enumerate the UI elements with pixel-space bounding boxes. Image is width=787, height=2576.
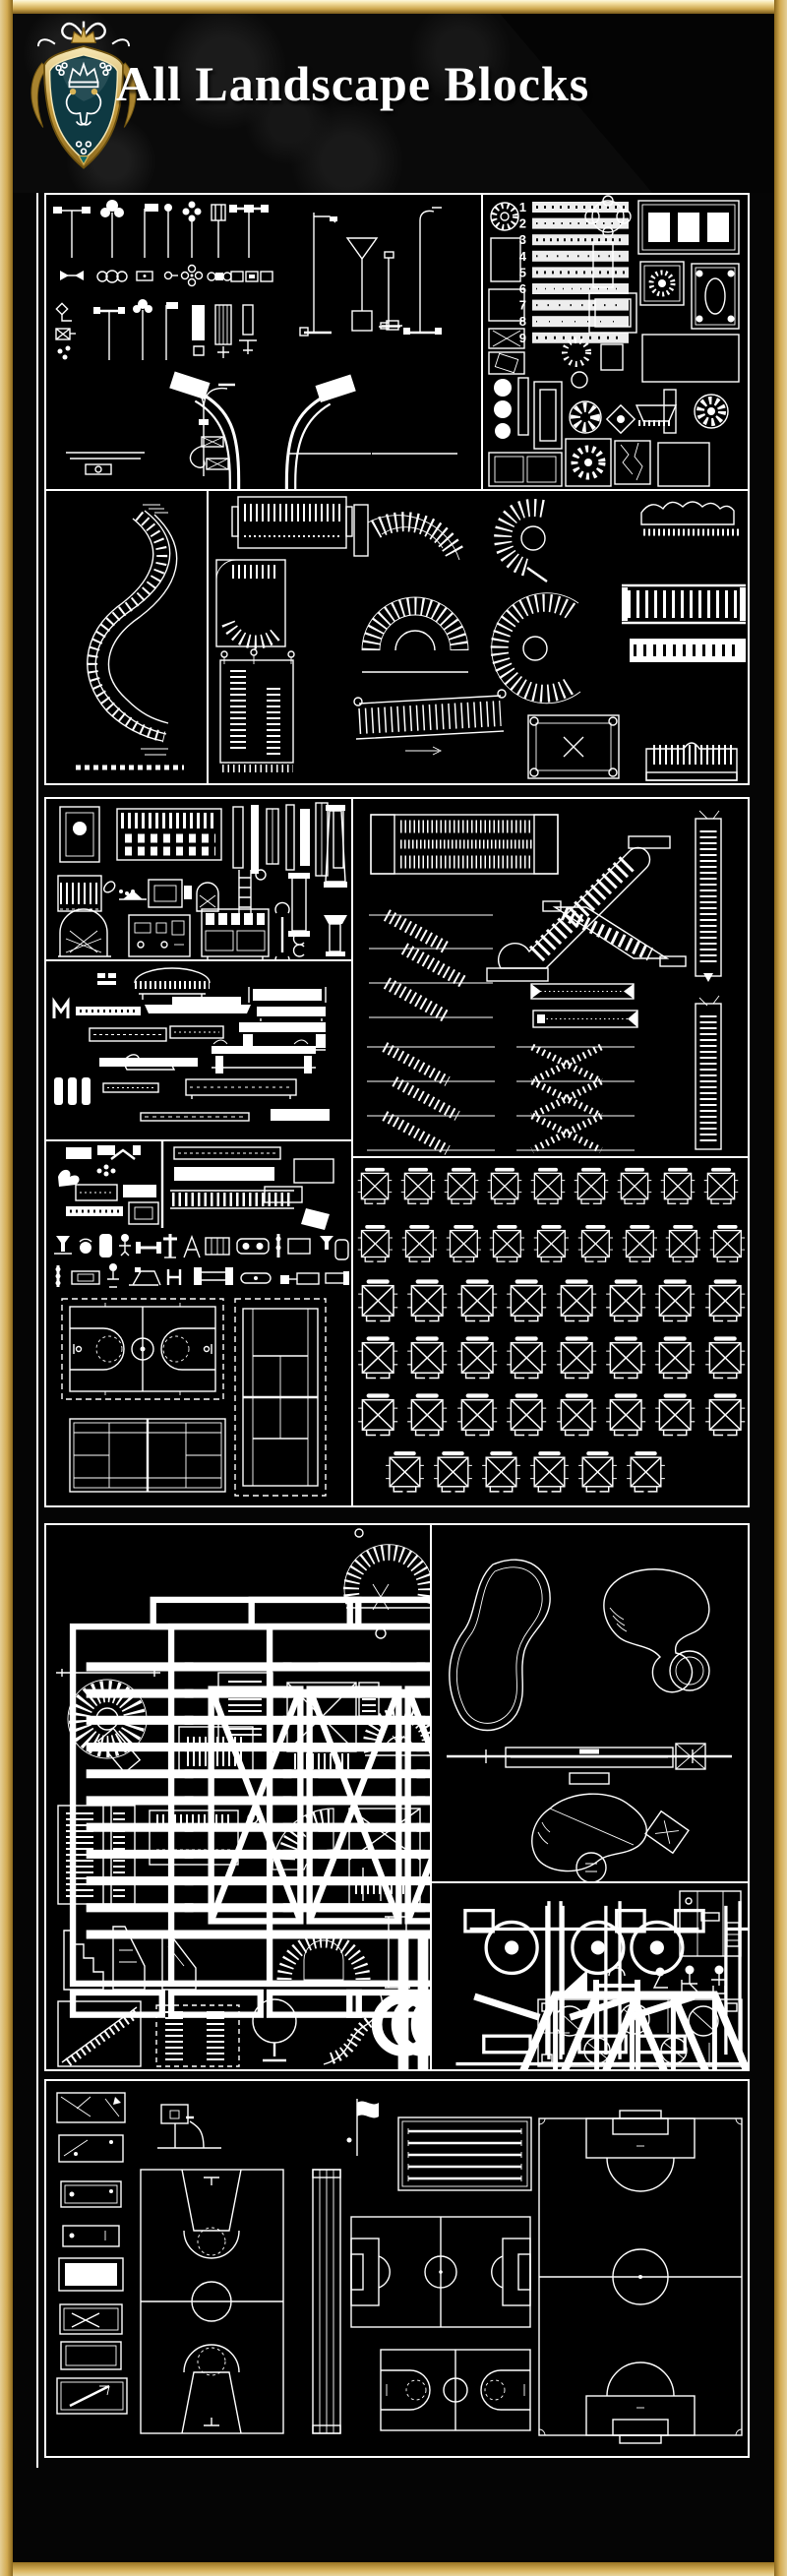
platform-plan bbox=[528, 715, 619, 778]
gold-frame-top bbox=[0, 0, 787, 14]
x-table-block bbox=[702, 1276, 748, 1326]
x-table-block bbox=[355, 1221, 395, 1267]
legend-number: 1 bbox=[519, 200, 526, 215]
x-table-block bbox=[399, 1221, 440, 1267]
gold-frame-right bbox=[774, 0, 787, 2576]
gold-frame-bottom bbox=[0, 2562, 787, 2576]
stair-plan-drawings bbox=[46, 1525, 430, 2069]
x-table-block bbox=[527, 1448, 572, 1497]
game-table-blocks-column bbox=[57, 2093, 127, 2414]
sport-fields-drawings bbox=[46, 2081, 748, 2456]
freeform-pool-with-spa bbox=[604, 1569, 709, 1692]
x-table-block bbox=[707, 1221, 748, 1267]
table-row bbox=[353, 1443, 748, 1501]
sports-courts-and-equipment-drawings bbox=[46, 1141, 351, 1505]
table-row bbox=[353, 1329, 748, 1386]
tennis-court-plan bbox=[235, 1299, 326, 1496]
x-table-block bbox=[404, 1276, 450, 1326]
x-table-block bbox=[504, 1333, 549, 1383]
x-table-block bbox=[487, 1221, 527, 1267]
ornate-gate bbox=[646, 743, 737, 780]
table-row bbox=[353, 1272, 748, 1329]
wall-gym-unit bbox=[680, 1891, 741, 1956]
escalator-plan-strips bbox=[531, 984, 637, 1027]
lamp-symbols-row2 bbox=[56, 299, 257, 360]
straight-stair-side-view bbox=[354, 690, 506, 755]
x-table-block bbox=[531, 1221, 572, 1267]
tall-pole-lamps bbox=[300, 208, 442, 336]
x-table-block bbox=[575, 1221, 616, 1267]
x-table-block bbox=[504, 1276, 549, 1326]
x-table-block bbox=[652, 1333, 697, 1383]
badminton-court-plan bbox=[70, 1419, 225, 1492]
legend-number: 9 bbox=[519, 331, 526, 345]
crest-top-crown bbox=[72, 28, 95, 43]
x-table-block bbox=[383, 1448, 427, 1497]
hedge-profile bbox=[641, 502, 740, 532]
gym-equipment-symbols bbox=[54, 1234, 349, 1287]
x-table-block bbox=[572, 1165, 611, 1208]
x-table-block bbox=[404, 1390, 450, 1441]
legend-number: 8 bbox=[519, 314, 526, 329]
bench-and-slab-drawings bbox=[46, 961, 351, 1139]
stair-misc-row5 bbox=[58, 1990, 406, 2066]
x-table-block bbox=[454, 1333, 500, 1383]
x-table-block bbox=[431, 1448, 475, 1497]
x-table-block bbox=[554, 1333, 599, 1383]
multi-level-escalator-sections bbox=[367, 1047, 635, 1150]
x-table-block bbox=[701, 1165, 741, 1208]
page-title: All Landscape Blocks bbox=[116, 55, 589, 112]
x-table-block bbox=[702, 1333, 748, 1383]
x-table-block bbox=[603, 1390, 648, 1441]
x-table-block bbox=[485, 1165, 524, 1208]
panel-elements-escalators-tables-courts bbox=[44, 797, 750, 1507]
x-table-block bbox=[663, 1221, 703, 1267]
panel-sport-fields bbox=[44, 2079, 750, 2458]
content-frame-left-line bbox=[36, 193, 38, 2468]
running-lane-strip bbox=[313, 2170, 340, 2433]
x-table-block bbox=[398, 1165, 438, 1208]
freeform-pool-2 bbox=[532, 1794, 689, 1881]
table-row bbox=[353, 1215, 748, 1272]
street-lamps-drawings bbox=[46, 195, 481, 489]
x-table-block bbox=[355, 1333, 400, 1383]
x-table-block bbox=[620, 1221, 660, 1267]
x-table-block bbox=[575, 1448, 620, 1497]
spiral-staircase-drawing bbox=[46, 491, 207, 783]
legend-number: 2 bbox=[519, 216, 526, 231]
x-table-block bbox=[504, 1390, 549, 1441]
basketball-court-plan bbox=[62, 1299, 223, 1399]
vertical-escalator-plans bbox=[696, 811, 721, 1149]
gym-equipment-drawings bbox=[432, 1883, 748, 2069]
x-table-block bbox=[702, 1390, 748, 1441]
escalator-sections-left bbox=[369, 915, 493, 1017]
curved-stairs bbox=[362, 593, 580, 704]
x-table-block bbox=[444, 1221, 484, 1267]
lap-pool-plan bbox=[398, 2117, 531, 2190]
legend-number: 7 bbox=[519, 298, 526, 313]
x-table-block bbox=[554, 1276, 599, 1326]
x-table-block bbox=[355, 1276, 400, 1326]
panel-lamps-paving-stairs: 1 2 3 4 5 6 7 8 9 bbox=[44, 193, 750, 785]
vertical-basketball-court bbox=[141, 2170, 283, 2433]
horizontal-basketball-court bbox=[381, 2350, 530, 2430]
x-table-block bbox=[404, 1333, 450, 1383]
x-table-block bbox=[554, 1390, 599, 1441]
paving-pattern-drawings: 1 2 3 4 5 6 7 8 9 bbox=[483, 195, 748, 489]
x-table-block bbox=[615, 1165, 654, 1208]
curved-street-lamps bbox=[66, 371, 481, 489]
basketball-hoop-elevation bbox=[157, 2105, 221, 2148]
x-table-block bbox=[454, 1390, 500, 1441]
x-table-block bbox=[442, 1165, 481, 1208]
x-table-block bbox=[603, 1333, 648, 1383]
x-table-block bbox=[479, 1448, 523, 1497]
escalator-plan-view bbox=[371, 815, 558, 874]
balustrade-railing bbox=[622, 585, 746, 662]
pool-cross-section bbox=[447, 1744, 732, 1784]
x-table-block bbox=[652, 1390, 697, 1441]
x-table-block bbox=[658, 1165, 697, 1208]
swimming-pool-drawings bbox=[432, 1525, 748, 1881]
panel-stairs-pools-gym bbox=[44, 1523, 750, 2071]
stairs-railings-gates-drawings bbox=[209, 491, 748, 783]
x-table-block bbox=[355, 1165, 394, 1208]
escalator-drawings bbox=[353, 799, 748, 1156]
x-table-block bbox=[528, 1165, 568, 1208]
x-table-block bbox=[355, 1390, 400, 1441]
x-table-block bbox=[454, 1276, 500, 1326]
gold-frame-left bbox=[0, 0, 13, 2576]
small-blocks bbox=[58, 1145, 333, 1230]
table-row bbox=[353, 1386, 748, 1443]
kidney-pool-plan bbox=[450, 1560, 550, 1730]
horizontal-soccer-field bbox=[351, 2217, 530, 2327]
x-table-block bbox=[624, 1448, 668, 1497]
x-table-blocks-grid bbox=[353, 1158, 748, 1505]
table-row bbox=[353, 1158, 748, 1215]
x-table-block bbox=[603, 1276, 648, 1326]
lamp-symbols-row1 bbox=[53, 200, 272, 286]
corner-flag bbox=[347, 2099, 380, 2156]
vertical-soccer-field bbox=[539, 2111, 742, 2443]
architectural-elements-drawings bbox=[46, 799, 351, 959]
paving-strips bbox=[532, 202, 629, 343]
x-table-block bbox=[652, 1276, 697, 1326]
